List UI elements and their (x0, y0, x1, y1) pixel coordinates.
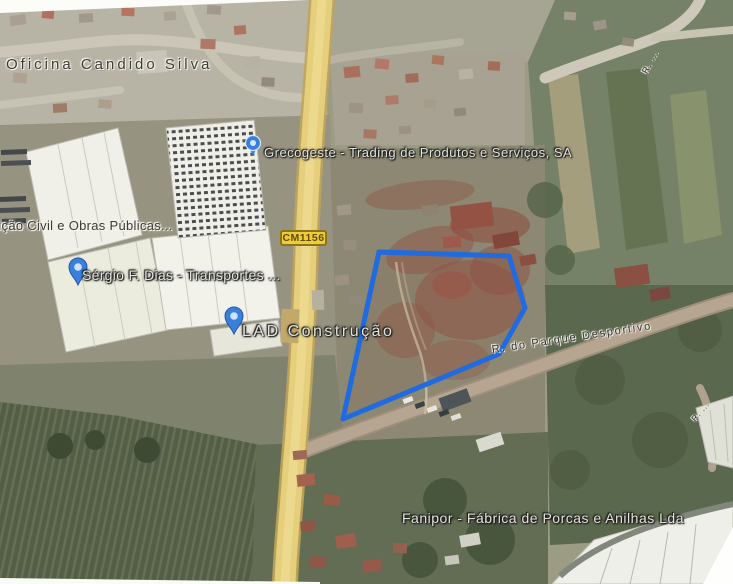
satellite-imagery (0, 0, 733, 584)
label-grecogeste[interactable]: Grecogeste - Trading de Produtos e Servi… (264, 146, 572, 160)
label-fanipor[interactable]: Fanipor - Fábrica de Porcas e Anilhas Ld… (402, 511, 684, 526)
scanned-satellite-map: Oficina Candido Silva Grecogeste - Tradi… (0, 0, 733, 584)
road-badge-cm1156: CM1156 (280, 230, 327, 246)
label-oficina-candido-silva[interactable]: Oficina Candido Silva (6, 57, 212, 73)
label-construcao-civil[interactable]: ução Civil e Obras Públicas... (0, 219, 173, 233)
label-lad-construcao[interactable]: LAD Construção (242, 324, 394, 341)
label-sergio-dias-transportes[interactable]: Sérgio F. Dias - Transportes ... (82, 268, 281, 283)
scan-wash-overlay (0, 0, 733, 584)
